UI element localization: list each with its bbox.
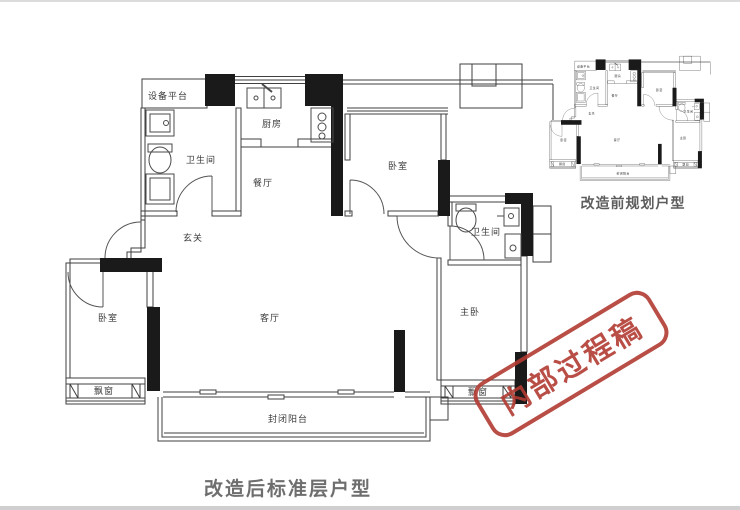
room-label-bedroom-top: 卧室 bbox=[388, 160, 408, 171]
caption-mini-plan: 改造前规划户型 bbox=[558, 193, 708, 213]
door-arcs bbox=[68, 176, 484, 307]
room-label-kitchen: 厨房 bbox=[262, 118, 282, 129]
page-bottom-border bbox=[0, 506, 740, 510]
room-label-entry: 玄关 bbox=[183, 232, 203, 243]
room-label-master-bedroom: 主卧 bbox=[460, 306, 480, 317]
room-label-bathroom-right: 卫生间 bbox=[471, 226, 501, 237]
structural-walls bbox=[100, 74, 533, 404]
room-label-bedroom-left: 卧室 bbox=[98, 312, 118, 323]
room-label-balcony: 封闭阳台 bbox=[268, 413, 308, 424]
room-label-bathroom-top-left: 卫生间 bbox=[186, 154, 216, 165]
mini-floorplan bbox=[550, 56, 711, 180]
room-label-equipment-platform: 设备平台 bbox=[148, 90, 188, 101]
floorplan-canvas: 设备平台 卫生间 厨房 餐厅 玄关 客厅 卧室 卫生间 主卧 卧室 飘窗 飘窗 … bbox=[0, 0, 740, 510]
room-label-bay-window-left: 飘窗 bbox=[94, 385, 114, 396]
room-label-dining: 餐厅 bbox=[253, 177, 273, 188]
room-label-living: 客厅 bbox=[260, 312, 280, 323]
floorplan-page: 设备平台 卫生间 厨房 餐厅 玄关 客厅 卧室 卫生间 主卧 卧室 飘窗 飘窗 … bbox=[0, 0, 740, 510]
caption-main-plan: 改造后标准层户型 bbox=[160, 474, 416, 501]
